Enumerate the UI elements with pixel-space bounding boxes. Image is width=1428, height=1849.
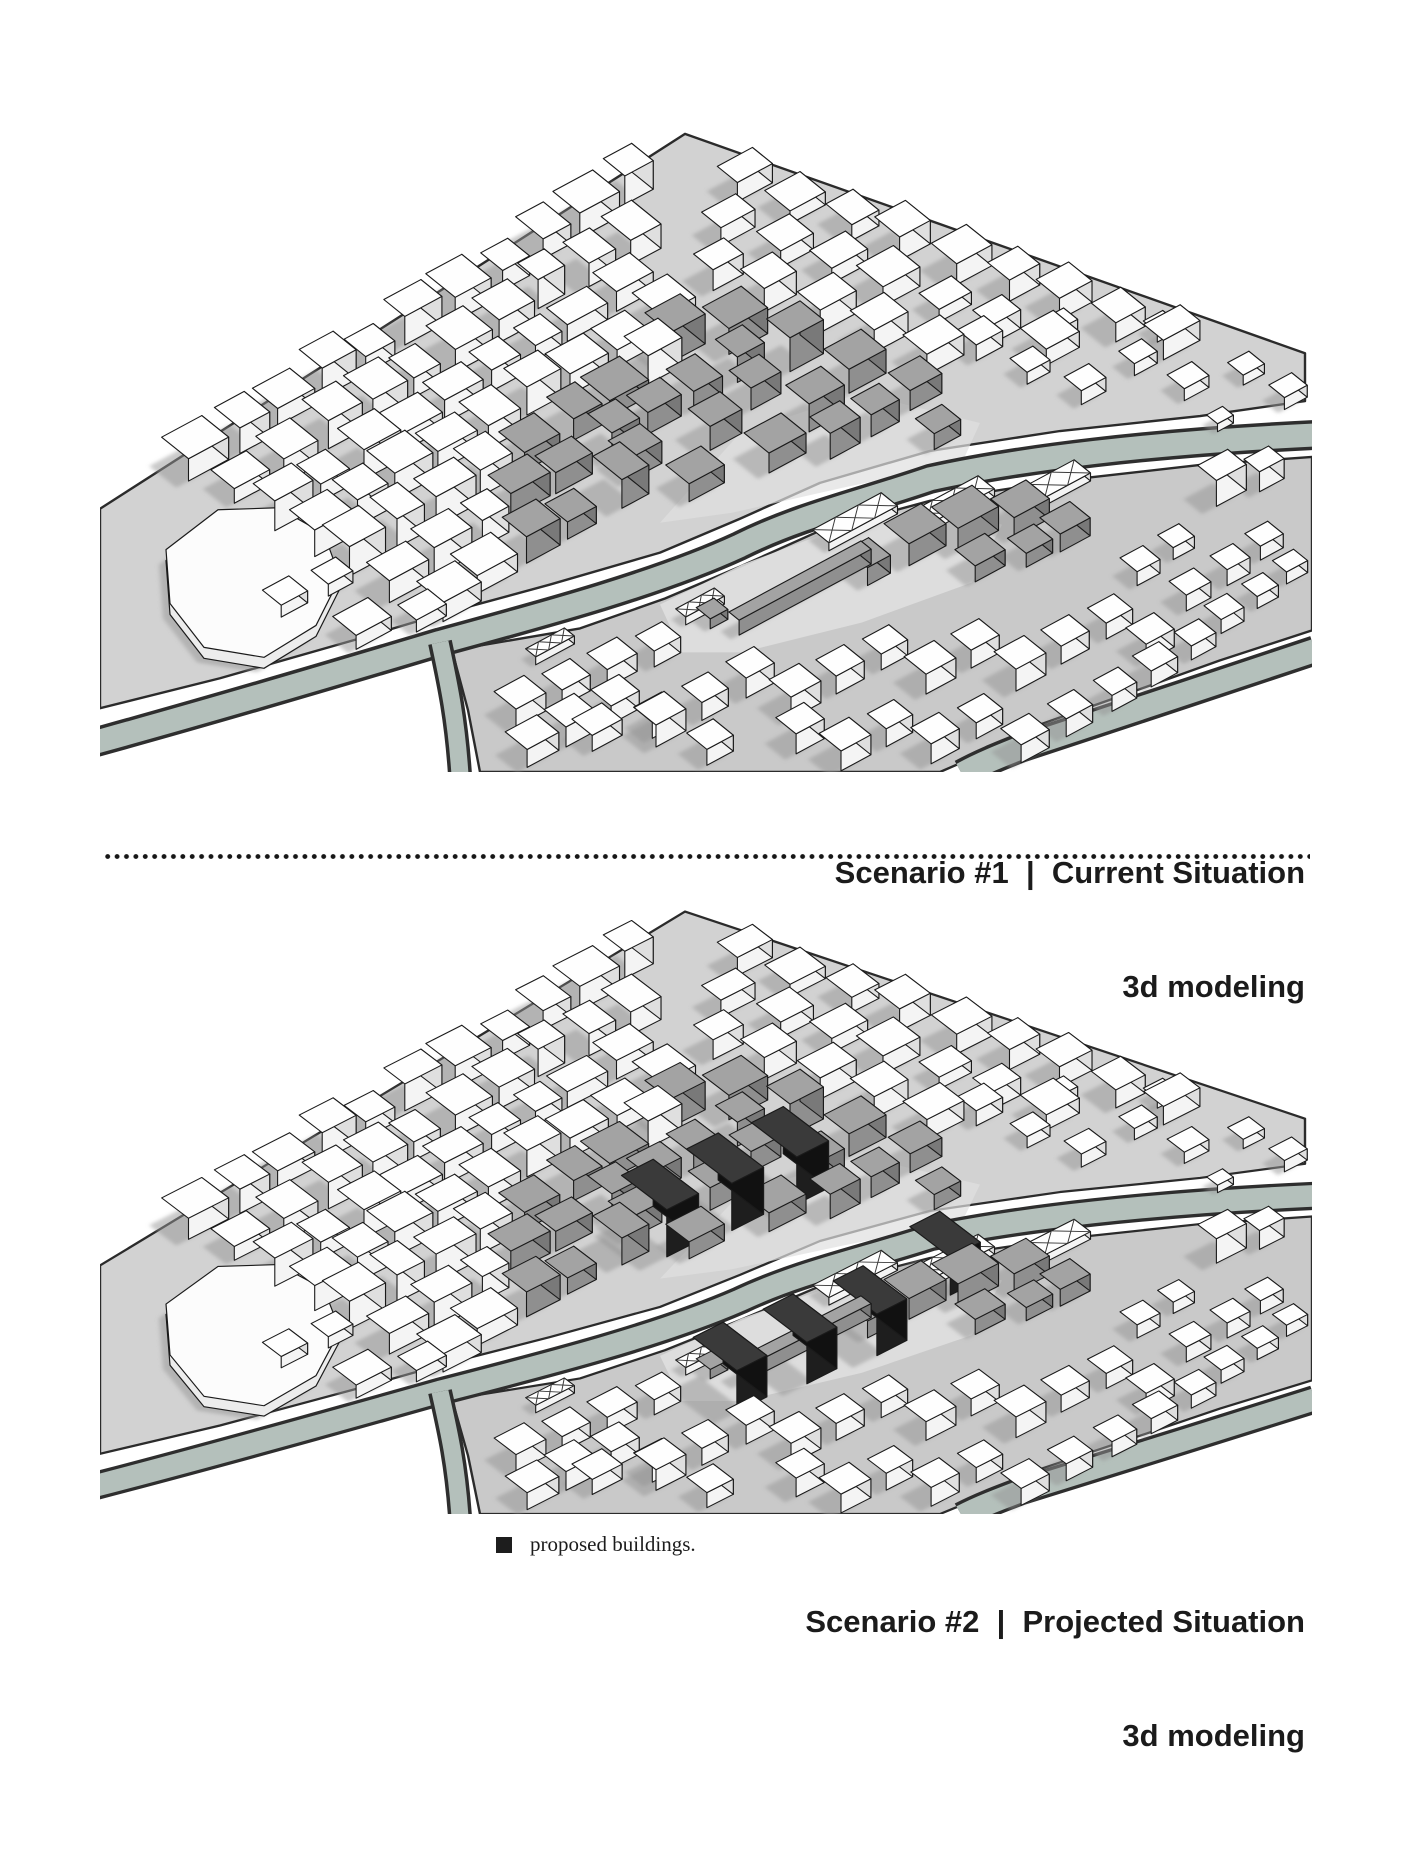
caption-scenario-2: Scenario #2 | Projected Situation 3d mod… [805,1527,1305,1831]
caption-scenario-2-title: Scenario #2 | Projected Situation [805,1603,1305,1641]
proposed-buildings-legend: proposed buildings. [496,1532,696,1557]
dotted-divider [103,853,1310,860]
scenario-2-3d-model [100,872,1312,1514]
figure-scenario-1 [100,92,1312,772]
figure-scenario-2 [100,872,1312,1514]
scenario-1-3d-model [100,92,1312,772]
document-page: Scenario #1 | Current Situation 3d model… [0,0,1428,1849]
proposed-buildings-label: proposed buildings. [530,1532,696,1557]
caption-scenario-2-subtitle: 3d modeling [805,1717,1305,1755]
proposed-building-swatch [496,1537,512,1553]
